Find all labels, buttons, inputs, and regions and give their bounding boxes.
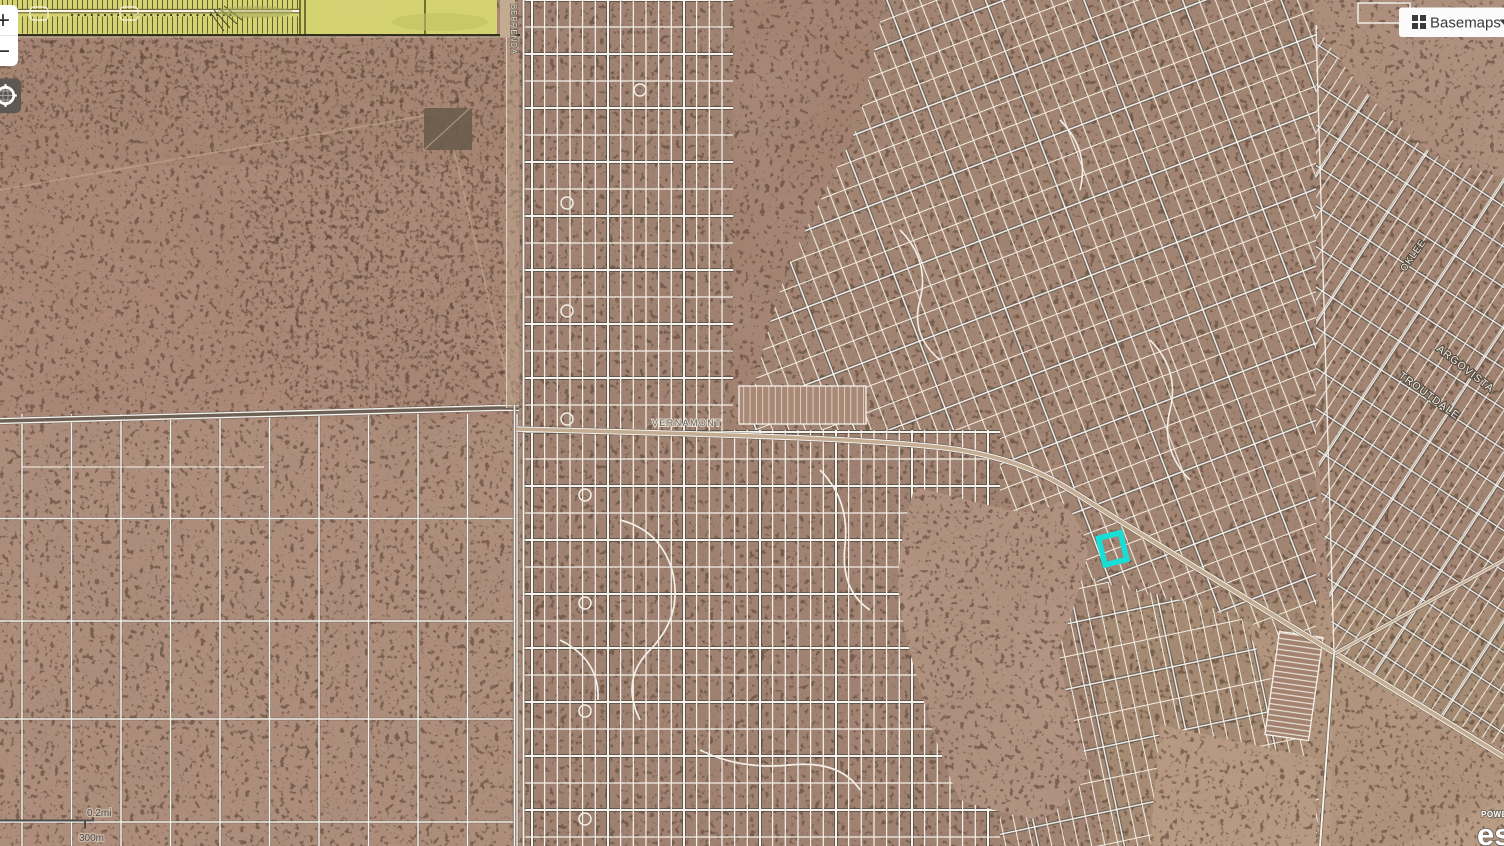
svg-text:−: − — [0, 38, 10, 65]
svg-text:+: + — [0, 7, 10, 34]
svg-text:esri: esri — [1477, 817, 1504, 846]
svg-text:Basemaps: Basemaps — [1430, 15, 1501, 32]
svg-text:VERNAMONT: VERNAMONT — [652, 418, 722, 428]
svg-text:0.2mi: 0.2mi — [87, 808, 111, 819]
svg-text:300m: 300m — [79, 833, 104, 844]
svg-text:BERRENDA: BERRENDA — [509, 4, 518, 55]
